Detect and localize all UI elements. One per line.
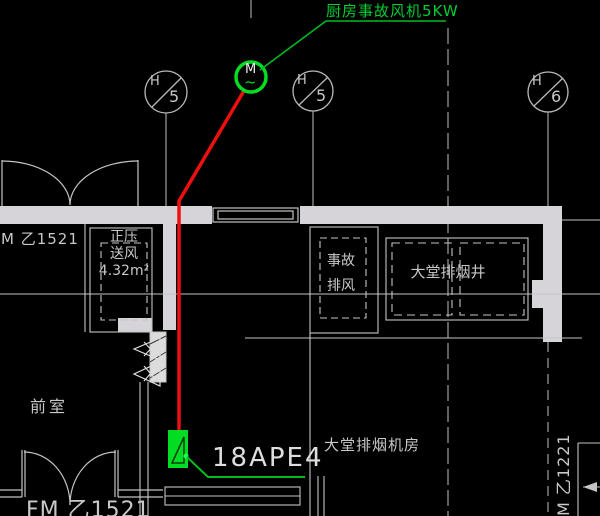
wall-louver-opening xyxy=(213,208,298,222)
shaft-label-line: 送风 xyxy=(95,246,153,263)
leader-arrow-icon xyxy=(583,482,597,492)
cad-floorplan-drawing: 厨房事故风机5KW H 5 H 5 H 6 M ~ M 乙1521 FM 乙15… xyxy=(0,0,600,516)
wall-top-right xyxy=(300,206,562,224)
shaft-label-line: 排风 xyxy=(318,274,364,299)
kitchen-fan-note: 厨房事故风机5KW xyxy=(326,3,459,20)
shaft-area-value: 4.32m² xyxy=(95,263,153,280)
double-door-bottom-left xyxy=(0,450,163,505)
grid-bubble-letter: H xyxy=(297,74,307,89)
shaft-label-line: 正压 xyxy=(95,229,153,246)
double-door-top-left xyxy=(2,160,138,206)
wall-left-strip xyxy=(163,224,176,330)
anteroom-label: 前室 xyxy=(30,398,68,416)
motor-wave: ~ xyxy=(244,74,257,91)
kitchen-fan-leader-line xyxy=(260,21,446,70)
grid-bubble-number: 6 xyxy=(551,88,561,106)
grid-bubble-letter: H xyxy=(532,75,542,90)
pressurization-shaft-label: 正压 送风 4.32m² xyxy=(95,229,153,280)
door-tag-bottom: FM 乙1521 xyxy=(26,498,151,516)
door-leaf-arc xyxy=(70,161,138,205)
power-cable-red xyxy=(179,89,245,430)
grid-bubble-number: 5 xyxy=(169,88,179,106)
panel-tag: 18APE4 xyxy=(212,444,324,474)
emergency-exhaust-label: 事故 排风 xyxy=(318,249,364,299)
louver-inner xyxy=(218,211,293,219)
grid-bubble-number: 5 xyxy=(316,87,326,105)
wall-right-vertical xyxy=(543,224,562,342)
distribution-box-icon xyxy=(168,430,189,468)
door-leaf-arc xyxy=(2,161,70,205)
lower-wall-niche xyxy=(165,487,300,505)
door-tag-right-vertical: M 乙1221 xyxy=(555,433,573,516)
lobby-smoke-shaft-label: 大堂排烟井 xyxy=(393,264,503,281)
grid-bubble-letter: H xyxy=(150,75,160,90)
fan-room-label: 大堂排烟机房 xyxy=(324,437,420,454)
shaft-label-line: 事故 xyxy=(318,249,364,274)
door-tag-left: M 乙1521 xyxy=(1,231,79,248)
